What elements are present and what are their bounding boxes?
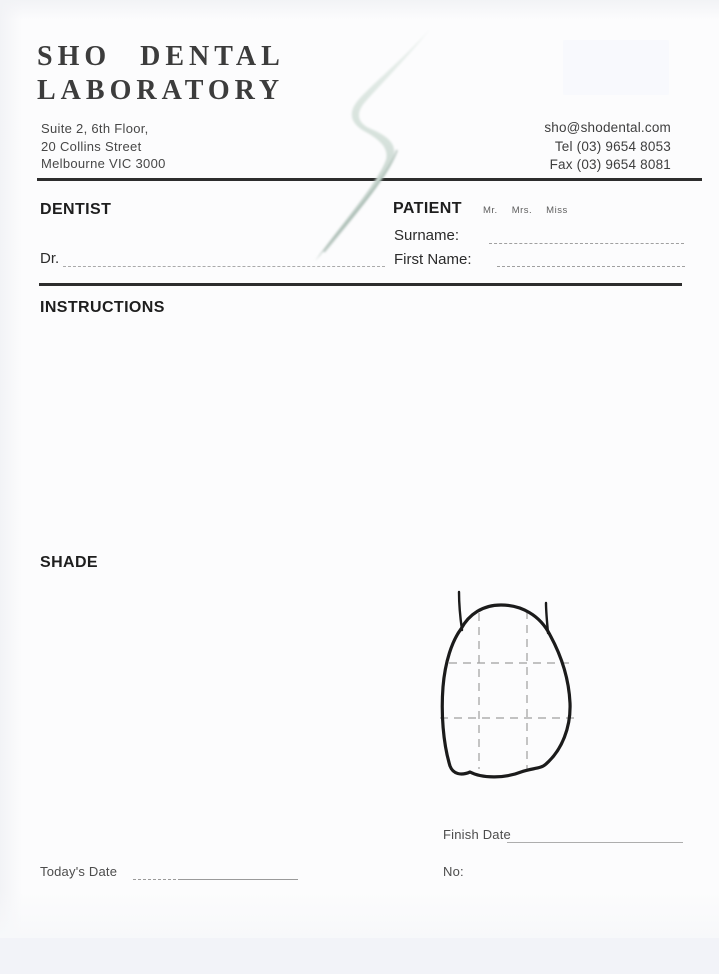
divider-instructions	[39, 283, 682, 286]
tooth-diagram	[425, 582, 585, 792]
title-mrs: Mrs.	[512, 205, 532, 216]
swoosh-underlay	[315, 28, 431, 261]
company-name: SHO DENTAL LABORATORY	[37, 40, 285, 108]
finish-date-label: Finish Date	[443, 827, 511, 842]
tooth-shade-gridlines	[440, 611, 575, 771]
todays-date-label: Today's Date	[40, 864, 117, 879]
scan-artifact-rect	[563, 40, 669, 95]
todays-date-fill-line-2	[181, 879, 298, 880]
instructions-section-label: INSTRUCTIONS	[40, 299, 165, 317]
address-line: Melbourne VIC 3000	[41, 155, 166, 173]
company-address: Suite 2, 6th Floor, 20 Collins Street Me…	[41, 120, 166, 173]
company-tel: Tel (03) 9654 8053	[544, 138, 671, 157]
surname-fill-line	[489, 243, 684, 244]
todays-date-fill-line	[133, 879, 181, 880]
company-email: sho@shodental.com	[544, 119, 671, 138]
company-name-line2: LABORATORY	[37, 74, 285, 108]
order-form-page: SHO DENTAL LABORATORY Suite 2, 6th Floor…	[0, 0, 719, 974]
swoosh-logo-icon	[295, 18, 445, 278]
scan-edge-left	[0, 0, 22, 974]
company-contact: sho@shodental.com Tel (03) 9654 8053 Fax…	[544, 119, 671, 175]
dr-field-label: Dr.	[40, 250, 59, 267]
address-line: 20 Collins Street	[41, 138, 166, 156]
first-name-fill-line	[497, 266, 685, 267]
dentist-section-label: DENTIST	[40, 201, 111, 219]
scan-shadow-band	[0, 890, 719, 938]
patient-title-options: Mr. Mrs. Miss	[483, 205, 568, 216]
scan-edge-bottom	[0, 938, 719, 974]
company-fax: Fax (03) 9654 8081	[544, 156, 671, 175]
title-mr: Mr.	[483, 205, 498, 216]
address-line: Suite 2, 6th Floor,	[41, 120, 166, 138]
tooth-outline	[442, 592, 570, 777]
title-miss: Miss	[546, 205, 568, 216]
shade-section-label: SHADE	[40, 554, 98, 572]
company-name-line1: SHO DENTAL	[37, 40, 285, 74]
scan-edge-top	[0, 0, 719, 20]
swoosh-ribbon	[315, 28, 431, 261]
no-field-label: No:	[443, 864, 464, 879]
finish-date-fill-line	[507, 842, 683, 843]
